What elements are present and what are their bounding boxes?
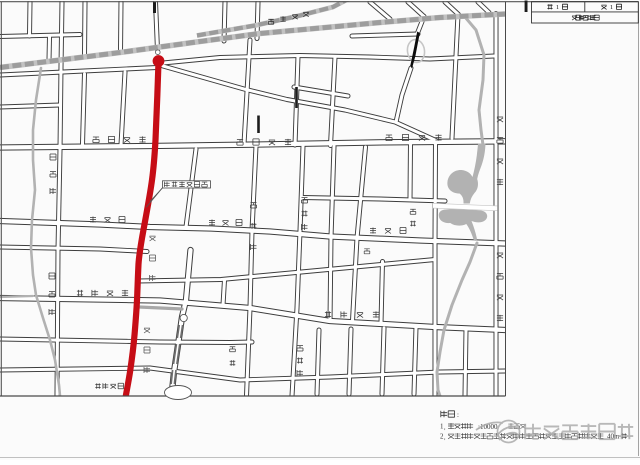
svg-text::: :	[457, 411, 459, 419]
svg-text:1: 1	[610, 4, 613, 11]
svg-text:1: 1	[556, 4, 559, 11]
